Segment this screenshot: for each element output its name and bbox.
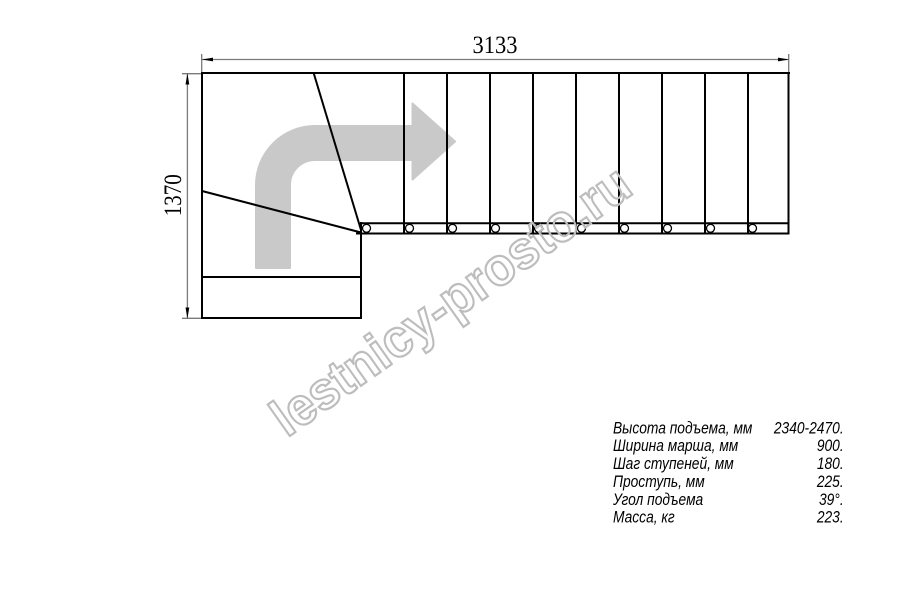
svg-text:223.: 223. <box>816 508 844 527</box>
svg-text:39°.: 39°. <box>819 491 844 510</box>
svg-text:900.: 900. <box>817 437 844 456</box>
svg-text:1370: 1370 <box>160 174 187 216</box>
svg-text:Шаг ступеней, мм: Шаг ступеней, мм <box>613 455 734 474</box>
svg-text:225.: 225. <box>816 473 844 492</box>
svg-text:Угол подъема: Угол подъема <box>612 491 703 510</box>
svg-text:Ширина марша, мм: Ширина марша, мм <box>613 437 739 456</box>
svg-text:lestnicy-prosto.ru: lestnicy-prosto.ru <box>260 154 642 448</box>
svg-text:Масса, кг: Масса, кг <box>613 508 675 527</box>
svg-text:Высота подъема, мм: Высота подъема, мм <box>613 419 753 438</box>
svg-text:Проступь, мм: Проступь, мм <box>613 473 705 492</box>
svg-text:2340-2470.: 2340-2470. <box>773 419 844 438</box>
svg-text:3133: 3133 <box>473 32 518 59</box>
svg-text:180.: 180. <box>817 455 844 474</box>
